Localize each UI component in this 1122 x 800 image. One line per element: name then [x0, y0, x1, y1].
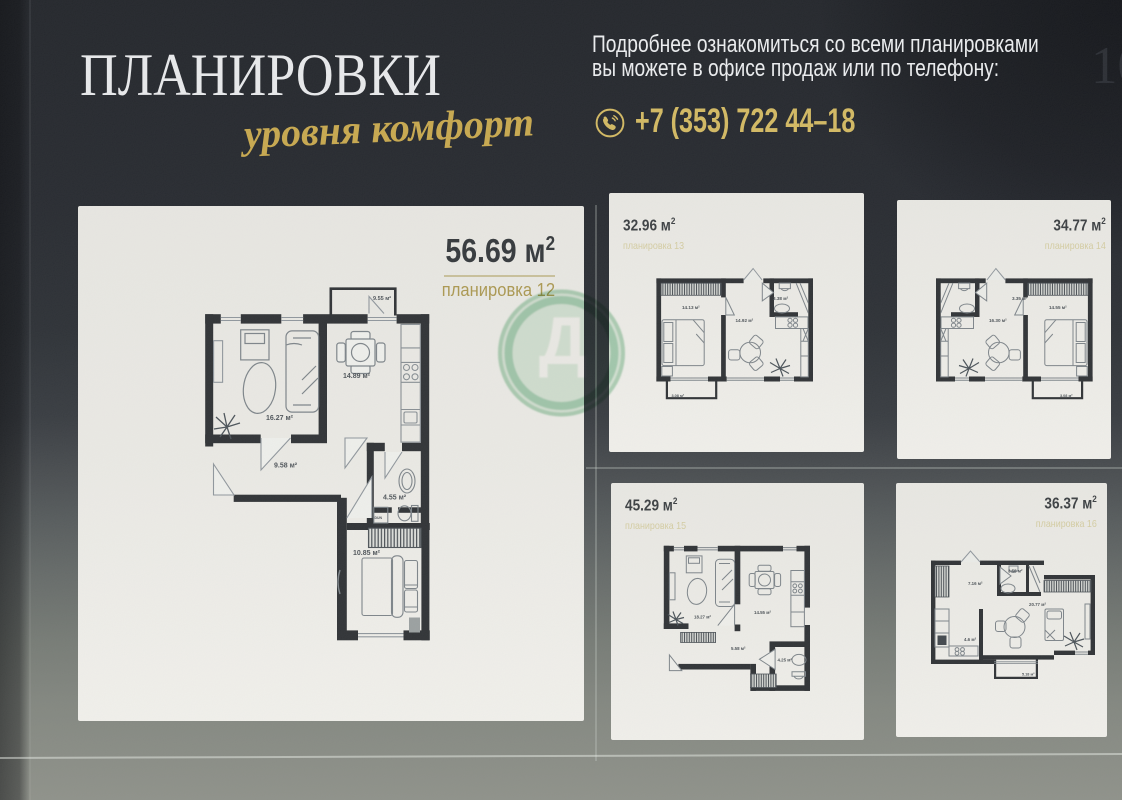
svg-text:18.27 м²: 18.27 м² [694, 615, 711, 620]
svg-text:20.77 м²: 20.77 м² [1029, 602, 1046, 607]
svg-text:3.08 м²: 3.08 м² [672, 394, 685, 398]
svg-text:14.13 м²: 14.13 м² [682, 305, 700, 310]
svg-text:14.55 м²: 14.55 м² [1049, 305, 1067, 310]
svg-text:14.89 м²: 14.89 м² [343, 373, 371, 380]
svg-text:DUN: DUN [375, 516, 383, 520]
svg-text:5.18 м²: 5.18 м² [1022, 673, 1035, 677]
svg-text:7.16 м²: 7.16 м² [968, 581, 983, 586]
svg-text:9.58 м²: 9.58 м² [274, 463, 298, 470]
svg-text:14.92 м²: 14.92 м² [736, 318, 754, 323]
svg-text:10.85 м²: 10.85 м² [353, 550, 381, 557]
svg-text:9.55 м²: 9.55 м² [373, 295, 391, 302]
svg-text:4.25 м²: 4.25 м² [778, 658, 793, 663]
svg-text:4.6 м²: 4.6 м² [964, 637, 977, 642]
svg-text:3.35 м²: 3.35 м² [1012, 296, 1028, 301]
svg-text:3.58 м²: 3.58 м² [1008, 569, 1023, 574]
svg-text:4.55 м²: 4.55 м² [383, 495, 407, 502]
svg-text:16.30 м²: 16.30 м² [989, 318, 1007, 323]
svg-text:5.58 м²: 5.58 м² [731, 646, 746, 651]
svg-text:14.55 м²: 14.55 м² [754, 610, 771, 615]
svg-text:16.27 м²: 16.27 м² [266, 415, 294, 422]
svg-text:.: . [352, 528, 354, 535]
svg-text:3.38 м²: 3.38 м² [773, 296, 789, 301]
svg-text:3.08 м²: 3.08 м² [1060, 394, 1073, 398]
